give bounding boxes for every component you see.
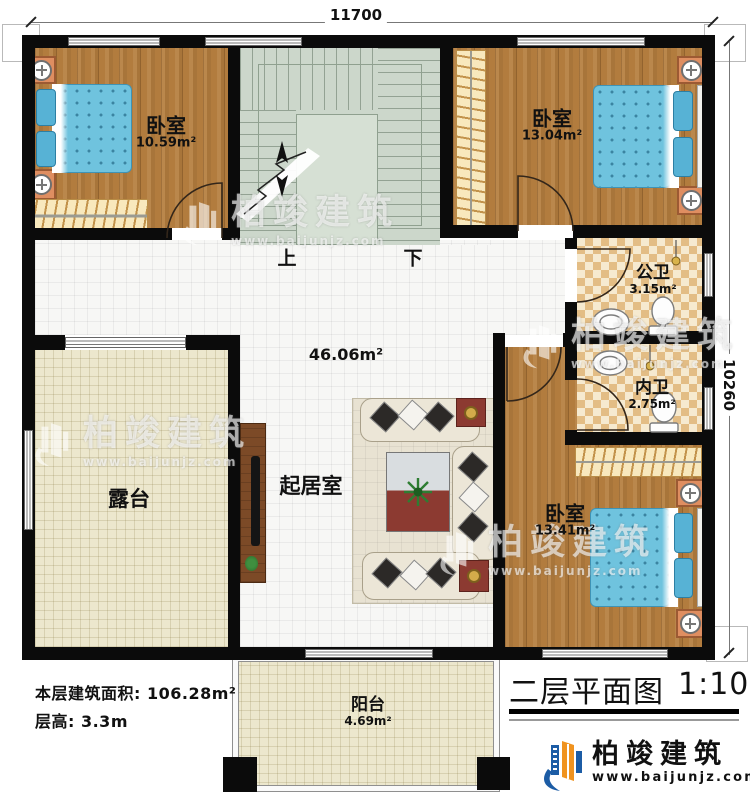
wall-bedroom-tr-left <box>440 35 453 238</box>
watermark-url: www.baijunjz.com <box>571 357 739 371</box>
watermark-brand: 柏竣建筑 <box>231 196 399 231</box>
bed-top-left <box>28 84 132 173</box>
stair-down-label: 下 <box>403 244 422 271</box>
balcony-column <box>223 757 257 792</box>
coffee-table <box>386 452 450 532</box>
lamp-icon <box>681 60 702 81</box>
brand-logo-icon <box>517 320 561 370</box>
floor-plan-page: { "plan": { "dimensions": { "top": "1170… <box>0 0 750 802</box>
title-scale: 1:100 <box>678 667 750 711</box>
wall-bath-left <box>565 238 577 249</box>
room-label-bedroom-br: 卧室 13.41m² <box>535 503 595 540</box>
nightstand <box>677 56 705 84</box>
lamp-icon <box>681 190 702 211</box>
side-table <box>456 398 486 427</box>
room-label-balcony: 阳台 4.69m² <box>344 696 391 728</box>
brand-logo-icon <box>177 197 221 247</box>
pillow <box>674 513 693 553</box>
ornament <box>464 406 478 420</box>
bed-top-right <box>593 85 703 188</box>
wall-bath-private-bottom <box>565 432 715 445</box>
brand-logo-icon <box>434 527 478 577</box>
floor-area-note: 本层建筑面积: 106.28m² <box>35 680 236 704</box>
title-rule-thick <box>509 709 739 714</box>
pillow <box>36 131 56 167</box>
stair-up-label: 上 <box>277 244 296 271</box>
pillow <box>673 91 693 131</box>
brand-text: 柏竣建筑 www.baijunjz.com <box>592 740 750 785</box>
window-bath-public <box>704 253 713 297</box>
bedroom-bottom-right-floor <box>505 347 577 647</box>
mattress <box>593 85 671 188</box>
window <box>68 37 160 46</box>
lamp-icon <box>680 613 701 634</box>
mattress <box>58 84 132 173</box>
window <box>517 37 645 46</box>
room-label-bedroom-tl: 卧室 10.59m² <box>136 115 196 152</box>
pillow <box>673 137 693 177</box>
title-rule-thin <box>509 719 739 721</box>
watermark: 柏竣建筑www.baijunjz.com <box>177 196 399 248</box>
wall-bedroom-br-left <box>493 333 505 647</box>
room-label-living: 起居室 <box>280 475 343 499</box>
nightstand <box>676 609 704 638</box>
watermark-brand: 柏竣建筑 <box>571 319 739 354</box>
pillow <box>674 558 693 598</box>
plant-icon <box>245 556 258 571</box>
wall-terrace-top <box>22 335 65 350</box>
nightstand <box>676 479 704 507</box>
window-bath-private <box>704 387 713 430</box>
closet <box>575 447 702 477</box>
window <box>205 37 302 46</box>
window-bedroom-br <box>542 649 668 658</box>
wall-bedroom-tl-bottom <box>22 228 172 240</box>
wall-bedroom-tr-bottom <box>440 225 518 238</box>
window-terrace <box>65 337 186 348</box>
balcony-sliding-door <box>305 649 433 658</box>
brand-name: 柏竣建筑 <box>592 740 750 770</box>
watermark: 柏竣建筑www.baijunjz.com <box>29 417 251 469</box>
room-label-bedroom-tr: 卧室 13.04m² <box>522 108 582 145</box>
room-label-bath-public: 公卫 3.15m² <box>629 264 676 296</box>
nightstand <box>677 186 705 215</box>
brand-url: www.baijunjz.com <box>592 770 750 785</box>
brand-logo <box>538 735 586 797</box>
tv <box>251 456 260 546</box>
room-label-bath-private: 内卫 2.75m² <box>628 379 675 411</box>
room-label-terrace: 露台 <box>108 488 150 512</box>
title-text: 二层平面图 <box>509 667 664 711</box>
pillow <box>36 89 56 126</box>
wall-terrace-right <box>228 335 240 647</box>
watermark-brand: 柏竣建筑 <box>83 417 251 452</box>
watermark: 柏竣建筑www.baijunjz.com <box>517 319 739 371</box>
lamp-icon <box>680 483 701 504</box>
drawing-title: 二层平面图 1:100 <box>509 667 750 711</box>
brand-logo-icon <box>29 418 73 468</box>
closet <box>456 50 486 228</box>
wall-bedroom-tr-bottom <box>573 225 715 238</box>
watermark-url: www.baijunjz.com <box>83 455 251 469</box>
brand-logo-icon <box>538 735 586 793</box>
dimension-top-value: 11700 <box>325 6 387 24</box>
watermark-url: www.baijunjz.com <box>488 564 656 578</box>
balcony-column <box>477 757 510 790</box>
floor-height-note: 层高: 3.3m <box>35 708 128 732</box>
living-area-value: 46.06m² <box>309 346 383 364</box>
watermark-url: www.baijunjz.com <box>231 234 399 248</box>
